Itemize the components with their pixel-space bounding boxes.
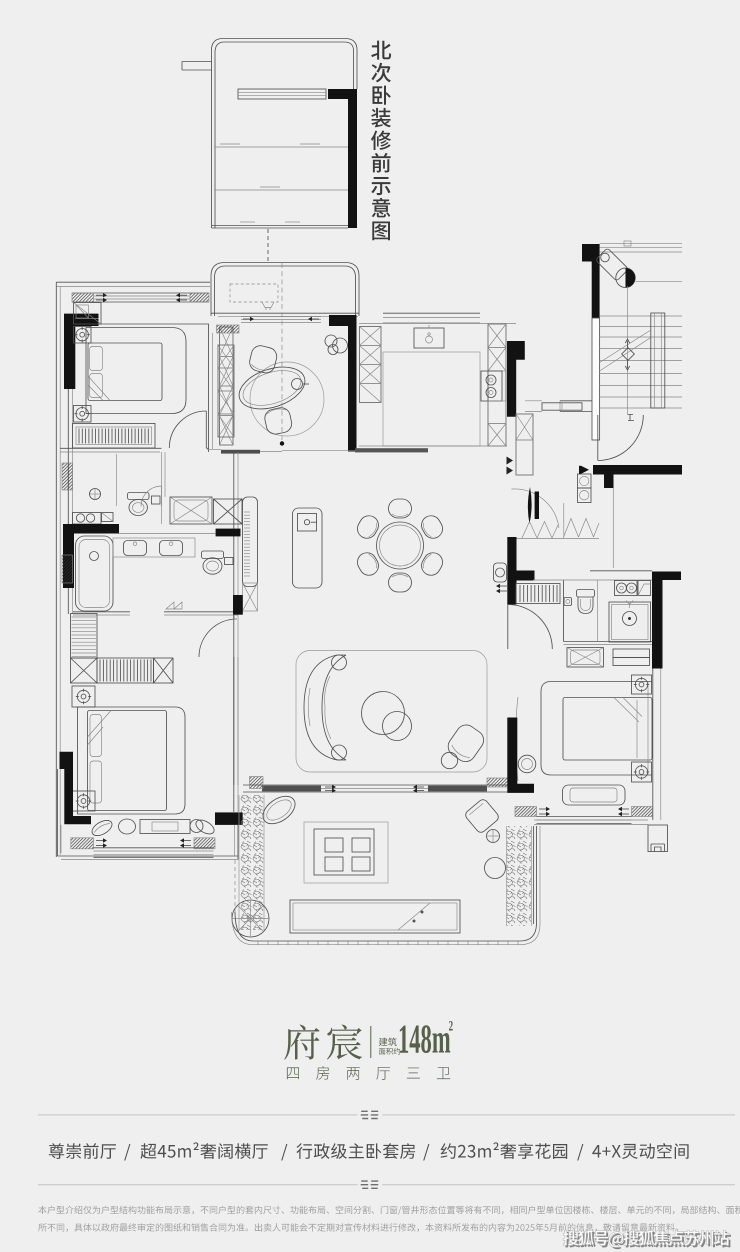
svg-text:2: 2 — [449, 1017, 453, 1034]
svg-text:148m: 148m — [398, 1018, 451, 1063]
